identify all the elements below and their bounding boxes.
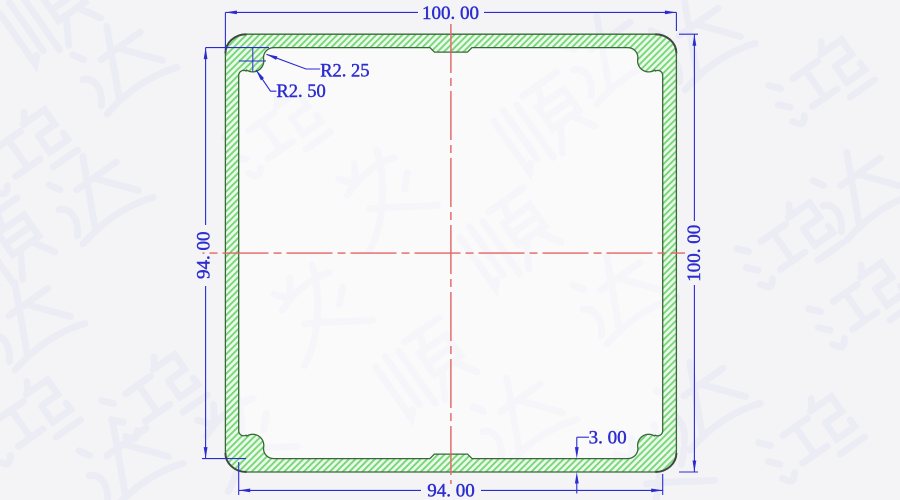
svg-text:94. 00: 94. 00 <box>427 481 475 500</box>
svg-text:R2. 50: R2. 50 <box>276 82 325 102</box>
svg-text:R2. 25: R2. 25 <box>320 61 369 81</box>
svg-text:100. 00: 100. 00 <box>684 225 705 282</box>
svg-text:3. 00: 3. 00 <box>589 427 627 448</box>
svg-text:100. 00: 100. 00 <box>422 3 479 24</box>
svg-text:94. 00: 94. 00 <box>194 232 215 279</box>
